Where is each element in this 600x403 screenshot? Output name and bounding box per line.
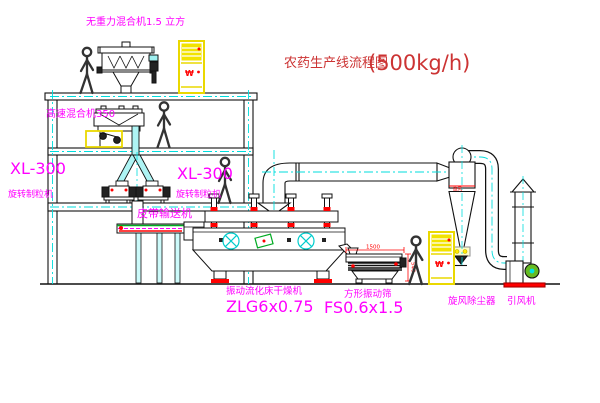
label-granulator-right-name: 旋转制粒机 [176, 188, 221, 200]
diagram-canvas: 1500 540 旋风 ₩ ₩ 无重力混合机1. [0, 0, 600, 403]
induced-draft-fan [504, 261, 545, 287]
square-sieve [346, 248, 406, 283]
label-granulator-right-model: XL-300 [177, 164, 233, 183]
label-fan-name: 引风机 [507, 295, 536, 307]
person-ground [409, 237, 422, 284]
control-cabinet-2 [429, 232, 454, 284]
granulator-right [136, 186, 170, 203]
label-granulator-left-model: XL-300 [10, 159, 66, 178]
cabinet-2-mark: ₩ [435, 260, 444, 269]
person-roof [81, 48, 94, 93]
label-high-speed-mixer: 高速混合机350 [46, 107, 115, 120]
label-top-mixer: 无重力混合机1.5 立方 [86, 15, 185, 28]
gravity-free-mixer [97, 42, 158, 93]
label-sieve-model: FS0.6x1.5 [324, 298, 403, 317]
control-cabinet-1 [179, 41, 204, 93]
diagram-title-capacity: (500kg/h) [368, 51, 470, 75]
granulator-left [102, 186, 136, 203]
label-belt-conveyor: 皮带输送机 [137, 206, 192, 220]
exhaust-duct [258, 163, 450, 211]
label-granulator-left-name: 旋转制粒机 [8, 188, 53, 200]
belt-conveyor [117, 224, 184, 283]
sieve-length-dim: 1500 [366, 245, 380, 251]
label-cyclone-name: 旋风除尘器 [448, 295, 496, 307]
cyclone-band-tag: 旋风 [453, 186, 462, 193]
person-floor2 [158, 102, 171, 147]
label-dryer-model: ZLG6x0.75 [226, 297, 314, 316]
process-flow-diagram-page: 1500 540 旋风 ₩ ₩ 无重力混合机1. [0, 0, 600, 403]
cabinet-1-mark: ₩ [185, 69, 194, 78]
label-dryer-name: 振动流化床干燥机 [226, 285, 303, 297]
